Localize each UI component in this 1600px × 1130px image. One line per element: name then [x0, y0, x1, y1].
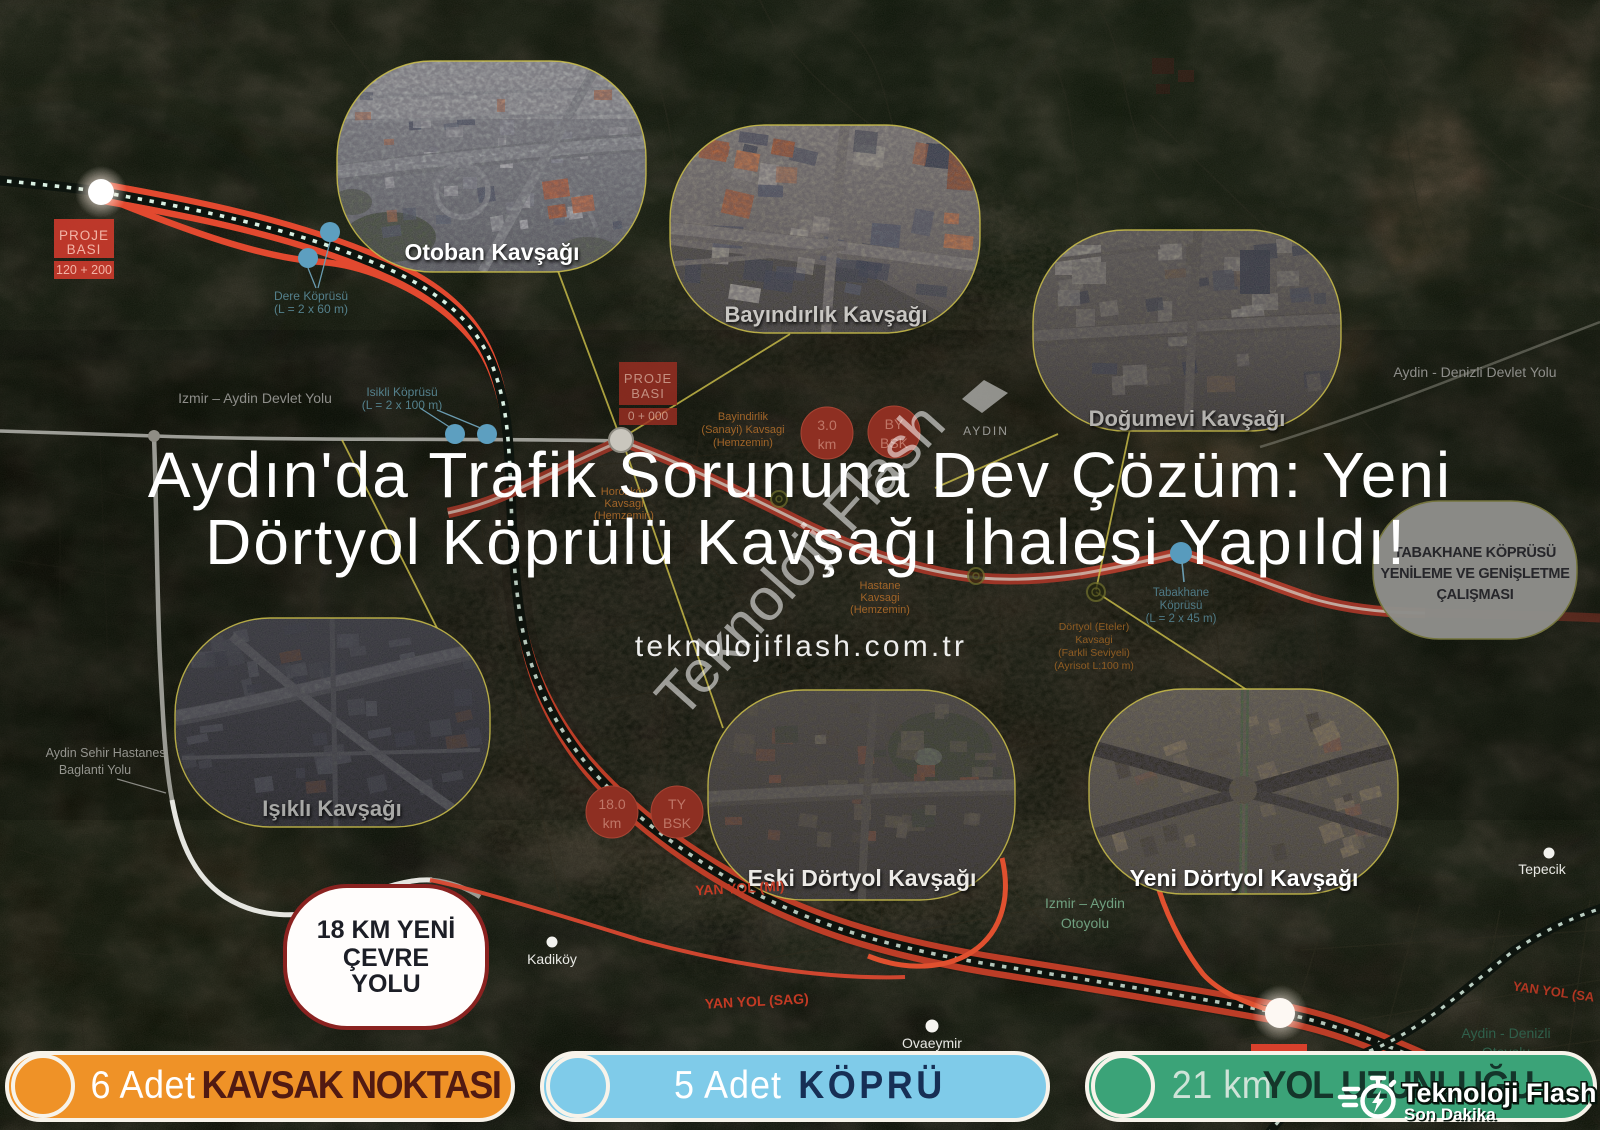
svg-text:TY: TY	[668, 796, 687, 812]
svg-text:Baglanti Yolu: Baglanti Yolu	[59, 763, 131, 777]
svg-text:Aydin - Denizli: Aydin - Denizli	[1461, 1025, 1550, 1041]
svg-text:18.0: 18.0	[598, 796, 625, 812]
svg-text:Dere Köprüsü: Dere Köprüsü	[274, 289, 348, 303]
svg-text:(L = 2 x 45 m): (L = 2 x 45 m)	[1146, 613, 1217, 625]
svg-text:ÇALIŞMASI: ÇALIŞMASI	[1436, 587, 1513, 603]
svg-text:(L = 2 x 100 m): (L = 2 x 100 m)	[362, 398, 443, 412]
svg-text:YOLU: YOLU	[351, 970, 420, 998]
svg-text:(Hemzemin): (Hemzemin)	[850, 604, 910, 616]
svg-text:Işıklı Kavşağı: Işıklı Kavşağı	[262, 796, 401, 821]
svg-text:Aydin Sehir Hastanesi: Aydin Sehir Hastanesi	[46, 746, 169, 760]
svg-text:Tepecik: Tepecik	[1518, 861, 1566, 877]
svg-text:Izmir – Aydin: Izmir – Aydin	[1045, 895, 1125, 911]
svg-text:Köprüsü: Köprüsü	[1160, 600, 1203, 612]
svg-text:PROJE: PROJE	[59, 228, 109, 243]
svg-text:(Farkli Seviyeli): (Farkli Seviyeli)	[1058, 647, 1130, 659]
svg-text:BASI: BASI	[67, 242, 102, 257]
svg-text:Yeni Dörtyol Kavşağı: Yeni Dörtyol Kavşağı	[1130, 865, 1359, 891]
svg-text:Bayindirlik: Bayindirlik	[718, 411, 769, 423]
svg-text:Isikli Köprüsü: Isikli Köprüsü	[366, 385, 437, 399]
svg-text:Kavsagi: Kavsagi	[860, 592, 899, 604]
svg-text:3.0: 3.0	[817, 417, 837, 433]
svg-text:18 KM YENİ: 18 KM YENİ	[317, 916, 455, 944]
svg-text:km: km	[603, 815, 622, 831]
svg-text:Doğumevi Kavşağı: Doğumevi Kavşağı	[1089, 406, 1286, 431]
svg-text:Aydin - Denizli Devlet Yolu: Aydin - Denizli Devlet Yolu	[1393, 364, 1556, 380]
svg-text:Ovaeymir: Ovaeymir	[902, 1035, 962, 1051]
svg-text:Dörtyol (Eteler): Dörtyol (Eteler)	[1059, 621, 1130, 633]
svg-text:PROJE: PROJE	[624, 371, 672, 386]
svg-text:(L = 2 x 60 m): (L = 2 x 60 m)	[274, 302, 348, 316]
svg-text:(Ayrisot L:100 m): (Ayrisot L:100 m)	[1054, 660, 1134, 672]
svg-text:Kadiköy: Kadiköy	[527, 951, 577, 967]
svg-text:BASI: BASI	[631, 386, 665, 401]
svg-text:BSK: BSK	[663, 815, 692, 831]
svg-text:Izmir – Aydin Devlet Yolu: Izmir – Aydin Devlet Yolu	[178, 390, 332, 406]
svg-text:Tabakhane: Tabakhane	[1153, 587, 1209, 599]
svg-text:Otoban Kavşağı: Otoban Kavşağı	[404, 239, 579, 265]
svg-text:AYDIN: AYDIN	[963, 424, 1009, 438]
svg-text:120 + 200: 120 + 200	[56, 263, 112, 277]
svg-text:Hastane: Hastane	[860, 580, 901, 592]
svg-text:Kavsagi: Kavsagi	[1075, 634, 1112, 646]
svg-text:Bayındırlık Kavşağı: Bayındırlık Kavşağı	[725, 302, 928, 327]
svg-text:Otoyolu: Otoyolu	[1061, 915, 1109, 931]
svg-text:ÇEVRE: ÇEVRE	[343, 944, 429, 972]
svg-text:(Sanayi) Kavsagi: (Sanayi) Kavsagi	[701, 424, 784, 436]
svg-text:0 + 000: 0 + 000	[628, 409, 669, 423]
